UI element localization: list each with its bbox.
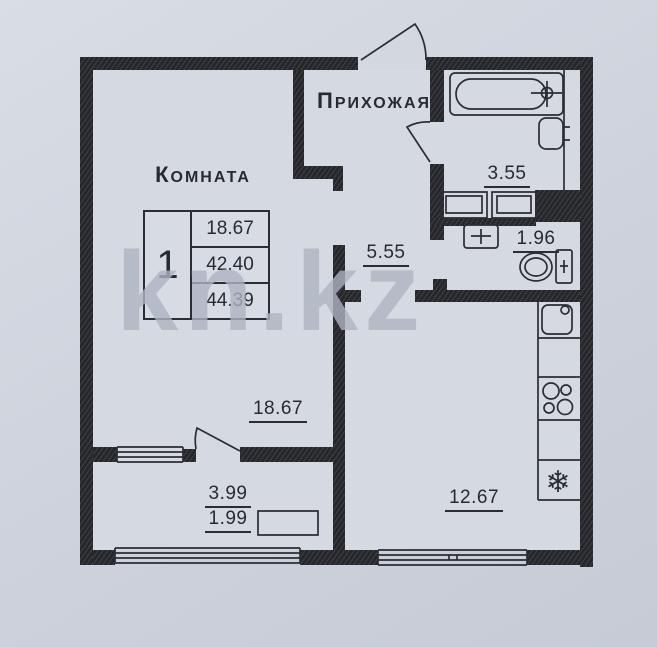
bathroom-sink [539,118,570,149]
site-watermark: kn.kz [116,236,426,348]
fridge: ❄ [545,465,570,500]
bathtub [450,73,563,115]
balcony-area-half-value: 1.99 [205,509,252,533]
toilet-area-value: 1.96 [513,229,560,253]
stove [543,383,573,415]
washing-machine [464,225,498,248]
balcony-area-half-label: 1.99 [193,509,263,533]
balcony-area-full-label: 3.99 [193,484,263,508]
entrance-door-swing [361,24,426,60]
room-area-value: 18.67 [249,399,307,423]
balcony-door-swing [195,428,240,451]
balcony-area-full-value: 3.99 [205,484,252,508]
bathroom-area-value: 3.55 [484,164,531,188]
toilet-area-label: 1.96 [501,229,571,253]
toilet [520,250,572,283]
balcony-room-window [117,447,183,462]
kitchen-window [378,550,527,565]
balcony-cabinet [258,511,318,535]
balcony-glazing [115,548,300,563]
bathroom-area-label: 3.55 [472,164,542,188]
fridge-symbol-icon: ❄ [545,465,570,500]
kitchen-sink [542,305,572,334]
kitchen-area-value: 12.67 [445,488,503,512]
bathroom-door-swing [407,122,430,162]
kitchen-area-label: 12.67 [438,488,510,512]
hallway-title: Прихожая [300,90,448,112]
room-title: Комната [128,164,278,186]
room-area-label: 18.67 [242,399,314,423]
bathroom-cabinet [441,192,536,218]
floor-plan: ❄ Комната Прихожая 1 18.67 42.40 44.39 5… [0,0,657,647]
